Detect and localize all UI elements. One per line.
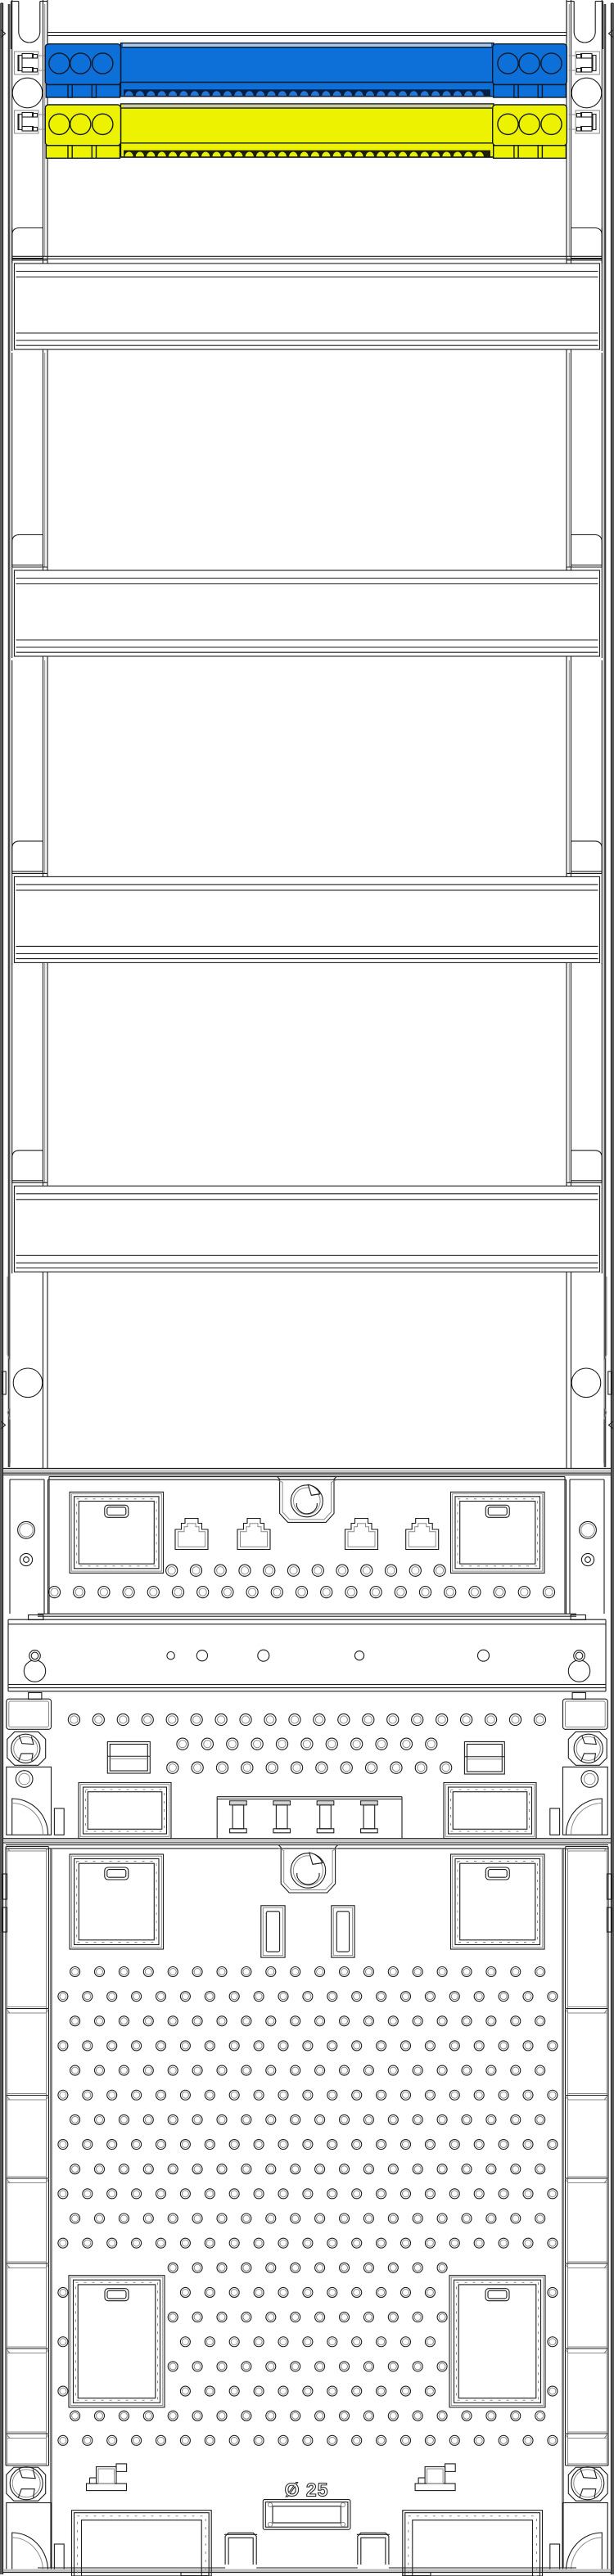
svg-text:Ø 25: Ø 25 xyxy=(285,2479,329,2501)
